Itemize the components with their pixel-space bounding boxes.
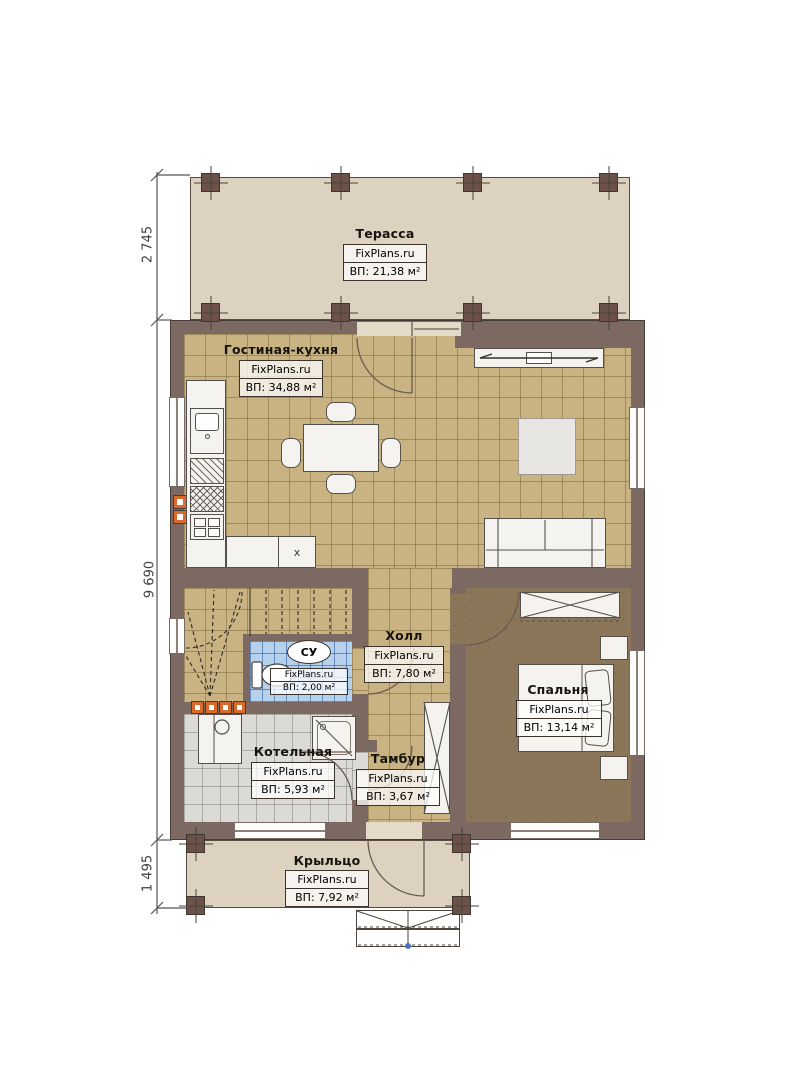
room-title-bedroom: Спальня <box>498 682 618 698</box>
area-text: ВП: 7,92 м² <box>286 888 368 906</box>
room-title-hall: Холл <box>344 628 464 644</box>
area-text: ВП: 5,93 м² <box>252 780 334 798</box>
room-label-box-hall: FixPlans.ru ВП: 7,80 м² <box>364 646 444 683</box>
entrance-step-marks <box>357 910 459 946</box>
area-text: ВП: 2,00 м² <box>271 681 347 694</box>
brand-text: FixPlans.ru <box>271 669 347 681</box>
room-label-box-bedroom: FixPlans.ru ВП: 13,14 м² <box>516 700 602 737</box>
area-text: ВП: 13,14 м² <box>517 718 601 736</box>
room-label-box-boiler: FixPlans.ru ВП: 5,93 м² <box>251 762 335 799</box>
brand-text: FixPlans.ru <box>344 245 426 262</box>
boiler-dial <box>215 720 229 734</box>
room-title-porch: Крыльцо <box>267 853 387 869</box>
dimension-terrace-depth: 2 745 <box>141 215 156 275</box>
room-label-box-wc: FixPlans.ru ВП: 2,00 м² <box>270 668 348 695</box>
room-title-terrace: Терасса <box>325 226 445 242</box>
floor-plan-canvas: 2 745 9 690 1 495 <box>0 0 792 1080</box>
door-swings <box>304 322 519 896</box>
dimension-house-depth: 9 690 <box>143 550 158 610</box>
area-text: ВП: 7,80 м² <box>365 664 443 682</box>
room-label-box-living-kitchen: FixPlans.ru ВП: 34,88 м² <box>239 360 323 397</box>
room-title-wc: СУ <box>287 640 331 664</box>
brand-text: FixPlans.ru <box>252 763 334 780</box>
brand-text: FixPlans.ru <box>286 871 368 888</box>
brand-text: FixPlans.ru <box>517 701 601 718</box>
dimension-porch-depth: 1 495 <box>141 844 156 904</box>
brand-text: FixPlans.ru <box>365 647 443 664</box>
brand-text: FixPlans.ru <box>357 770 439 787</box>
brand-text: FixPlans.ru <box>240 361 322 378</box>
area-text: ВП: 21,38 м² <box>344 262 426 280</box>
tv-symbol <box>480 354 598 362</box>
sofa-cushion-lines <box>486 518 604 567</box>
room-label-box-porch: FixPlans.ru ВП: 7,92 м² <box>285 870 369 907</box>
step-marker-dot <box>405 943 411 949</box>
room-title-boiler: Котельная <box>233 744 353 760</box>
room-title-vestibule: Тамбур <box>338 751 458 767</box>
line-art-overlay <box>0 0 792 1080</box>
room-label-box-terrace: FixPlans.ru ВП: 21,38 м² <box>343 244 427 281</box>
area-text: ВП: 34,88 м² <box>240 378 322 396</box>
dimension-lines <box>151 169 190 914</box>
room-title-living-kitchen: Гостиная-кухня <box>221 342 341 358</box>
room-label-box-vestibule: FixPlans.ru ВП: 3,67 м² <box>356 769 440 806</box>
area-text: ВП: 3,67 м² <box>357 787 439 805</box>
